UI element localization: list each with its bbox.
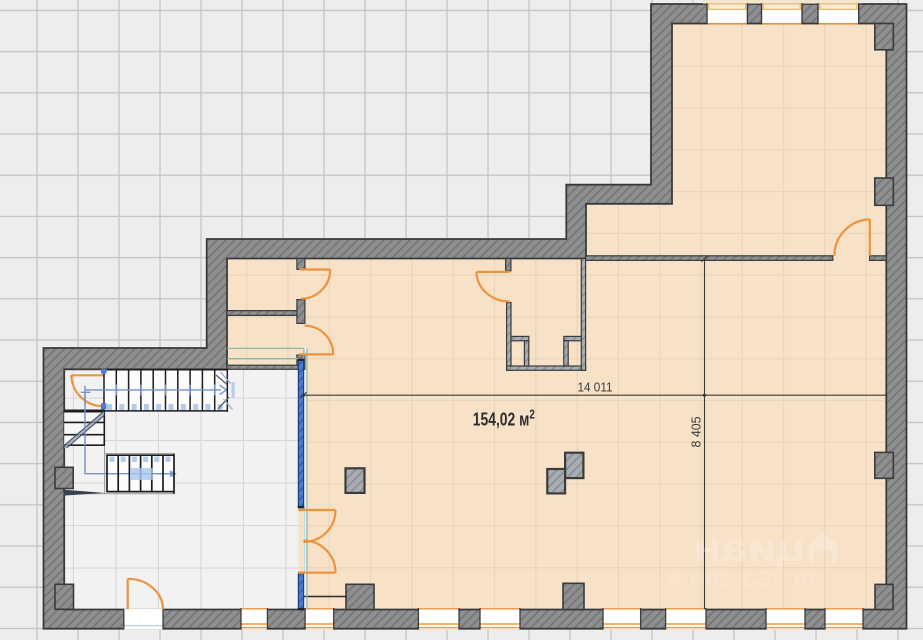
svg-text:48 753 290 4: 48 753 290 4 — [667, 570, 823, 591]
svg-text:8 405: 8 405 — [689, 417, 704, 448]
svg-text:циан: циан — [693, 526, 805, 570]
svg-text:154,02 м2: 154,02 м2 — [473, 408, 535, 430]
svg-text:14 011: 14 011 — [578, 380, 613, 395]
